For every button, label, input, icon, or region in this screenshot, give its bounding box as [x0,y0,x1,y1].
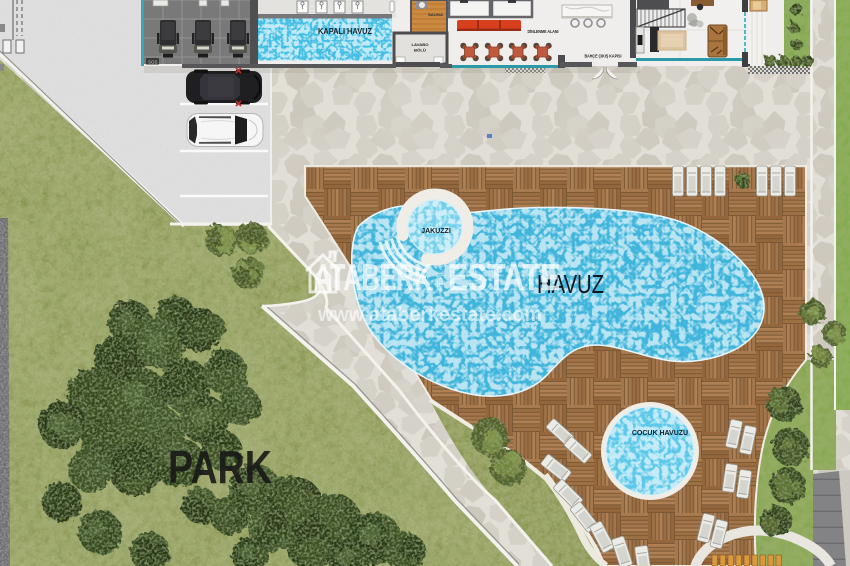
svg-text:REAL: REAL [436,270,445,291]
svg-text:ATABERK: ATABERK [314,257,432,298]
svg-text:PARK: PARK [168,441,272,493]
svg-text:LAVABO: LAVABO [412,42,429,47]
svg-text:ESTATE: ESTATE [448,257,560,298]
svg-text:BÖLÜ: BÖLÜ [414,48,426,53]
svg-text:SGS: SGS [148,60,158,65]
svg-text:DİNLENME ALANI: DİNLENME ALANI [528,28,559,34]
svg-text:KAPALI HAVUZ: KAPALI HAVUZ [318,26,372,36]
svg-text:BAHÇE ÇIKIŞ KAPISI: BAHÇE ÇIKIŞ KAPISI [585,54,622,59]
svg-text:SAUNA: SAUNA [428,12,443,17]
svg-text:COCUK HAVUZU: COCUK HAVUZU [632,430,688,437]
svg-text:www.ataberkestate.com: www.ataberkestate.com [317,304,542,326]
svg-text:JAKUZZI: JAKUZZI [421,228,451,235]
